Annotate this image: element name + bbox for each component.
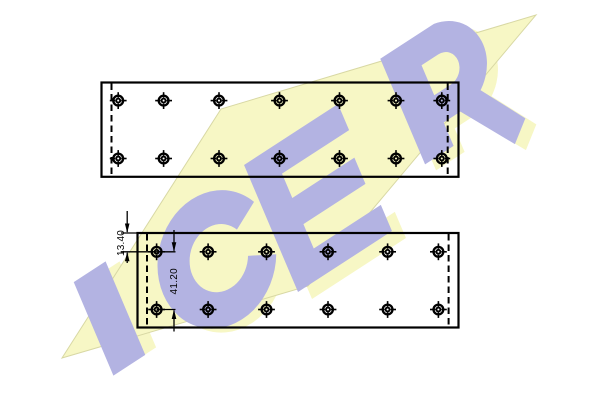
svg-text:41.20: 41.20 [169, 268, 180, 295]
svg-text:13.40: 13.40 [116, 230, 127, 256]
